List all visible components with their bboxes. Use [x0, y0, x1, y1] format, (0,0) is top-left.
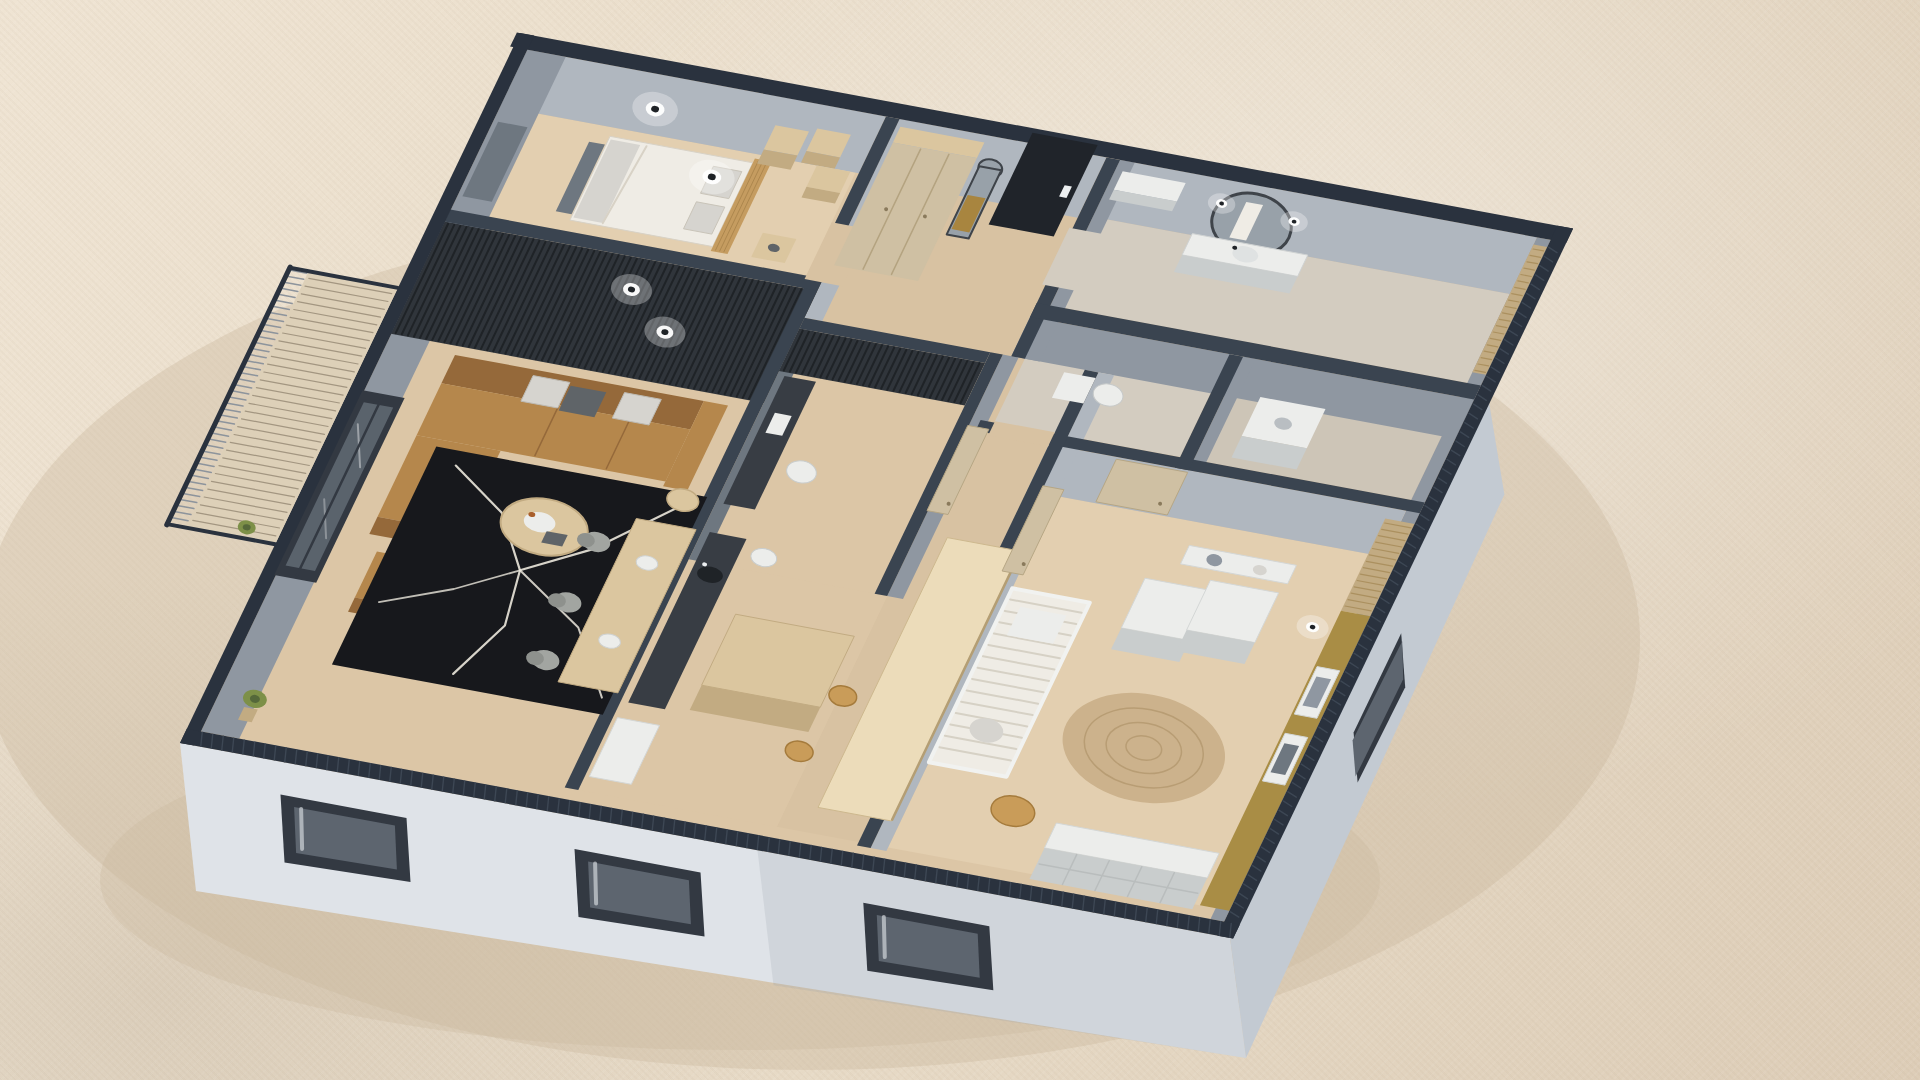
facade-window-3-curtain: [884, 917, 885, 957]
floorplan-render-svg: [0, 0, 1920, 1080]
facade-window-1-curtain: [301, 809, 302, 849]
balcony-baluster: [281, 288, 298, 291]
render-stage: [0, 0, 1920, 1080]
balcony-baluster: [275, 300, 292, 303]
facade-window-2-curtain: [595, 864, 596, 904]
balcony-baluster: [278, 294, 295, 297]
scene: [0, 32, 1640, 1070]
balcony-baluster: [287, 276, 304, 279]
balcony-baluster: [284, 282, 301, 285]
